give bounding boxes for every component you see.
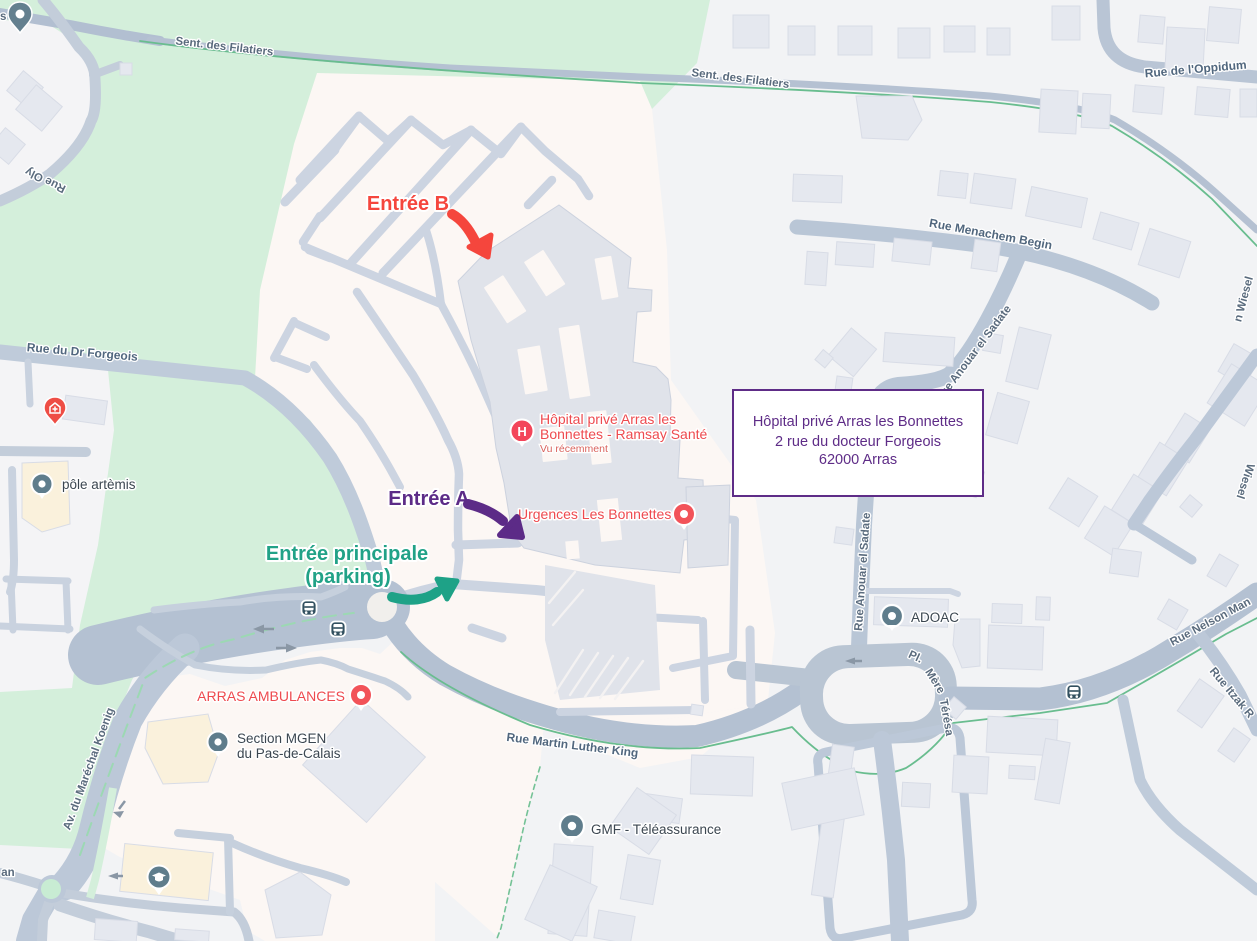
svg-text:GMF - Téléassurance: GMF - Téléassurance bbox=[591, 822, 721, 837]
svg-text:Entrée A: Entrée A bbox=[388, 488, 470, 510]
svg-text:(parking): (parking) bbox=[305, 566, 391, 588]
svg-text:62000 Arras: 62000 Arras bbox=[819, 452, 897, 468]
svg-text:pôle artèmis: pôle artèmis bbox=[62, 477, 136, 492]
svg-text:Entrée B: Entrée B bbox=[367, 193, 449, 215]
svg-text:Vu récemment: Vu récemment bbox=[540, 443, 608, 455]
svg-text:ADOAC: ADOAC bbox=[911, 610, 959, 625]
svg-text:H: H bbox=[517, 424, 526, 439]
svg-text:ARRAS AMBULANCES: ARRAS AMBULANCES bbox=[197, 688, 345, 704]
svg-text:Entrée principale: Entrée principale bbox=[266, 543, 428, 565]
svg-text:an: an bbox=[1, 867, 14, 879]
svg-text:s: s bbox=[0, 11, 6, 23]
svg-text:du Pas-de-Calais: du Pas-de-Calais bbox=[237, 746, 341, 761]
svg-text:Section MGEN: Section MGEN bbox=[237, 731, 326, 746]
svg-text:Hôpital privé Arras les: Hôpital privé Arras les bbox=[540, 411, 676, 427]
svg-text:2 rue du docteur Forgeois: 2 rue du docteur Forgeois bbox=[775, 434, 941, 450]
svg-text:Hôpital privé Arras les Bonnet: Hôpital privé Arras les Bonnettes bbox=[753, 414, 963, 430]
svg-text:Urgences Les Bonnettes: Urgences Les Bonnettes bbox=[518, 506, 671, 522]
svg-text:Bonnettes - Ramsay Santé: Bonnettes - Ramsay Santé bbox=[540, 426, 708, 442]
